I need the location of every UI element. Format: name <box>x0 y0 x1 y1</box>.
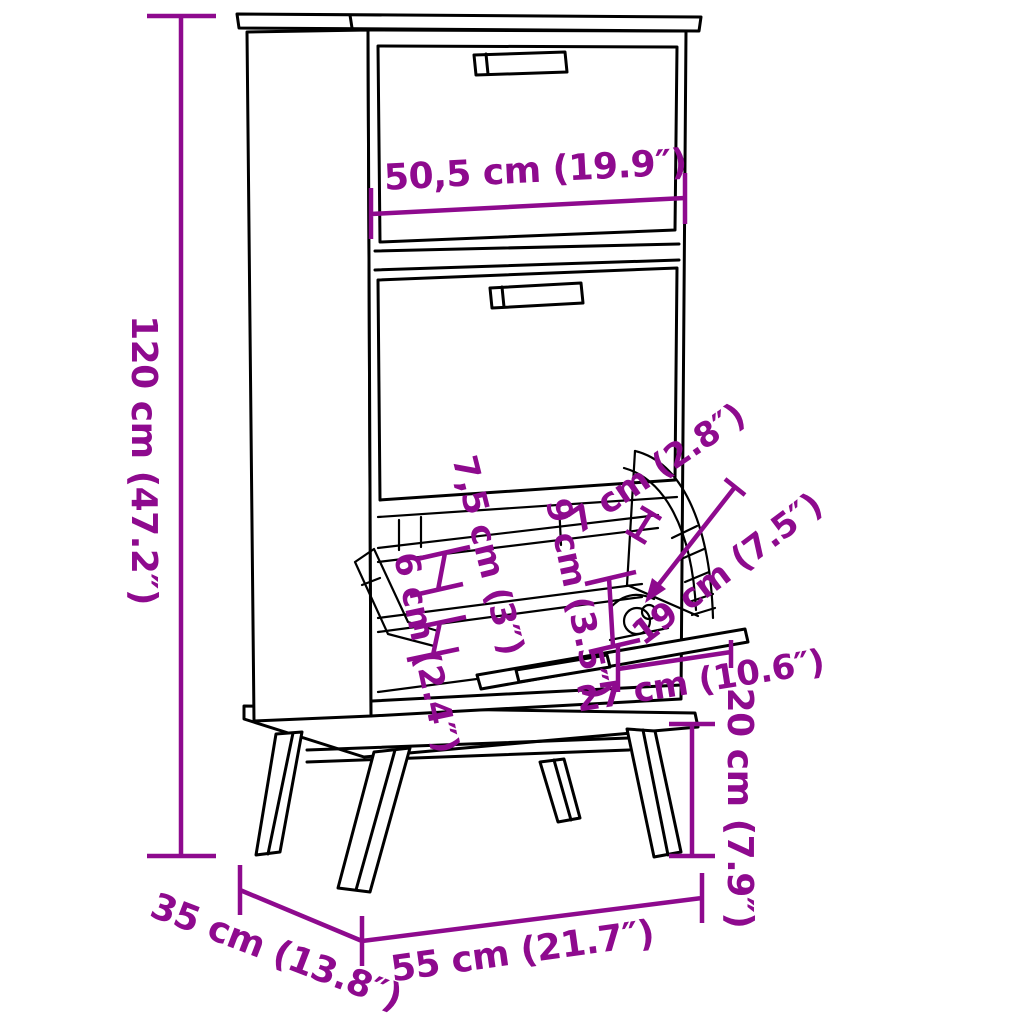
dim-label-leg-height: 20 cm (7.9″) <box>719 688 760 929</box>
dimension-height: 120 cm (47.2″) <box>123 16 216 856</box>
shoe-cabinet-diagram: 120 cm (47.2″) 50,5 cm (19.9″) 7,5 cm (3… <box>0 0 1024 1024</box>
dim-label-height: 120 cm (47.2″) <box>123 315 164 605</box>
diagram-page: 120 cm (47.2″) 50,5 cm (19.9″) 7,5 cm (3… <box>0 0 1024 1024</box>
dimension-leg-height: 20 cm (7.9″) <box>669 688 760 929</box>
dim-label-width: 55 cm (21.7″) <box>388 913 656 991</box>
cabinet-legs <box>256 729 681 892</box>
cabinet-side-panel <box>247 30 371 721</box>
dimension-width: 55 cm (21.7″) <box>362 873 702 990</box>
cabinet-top-panel <box>237 14 701 31</box>
